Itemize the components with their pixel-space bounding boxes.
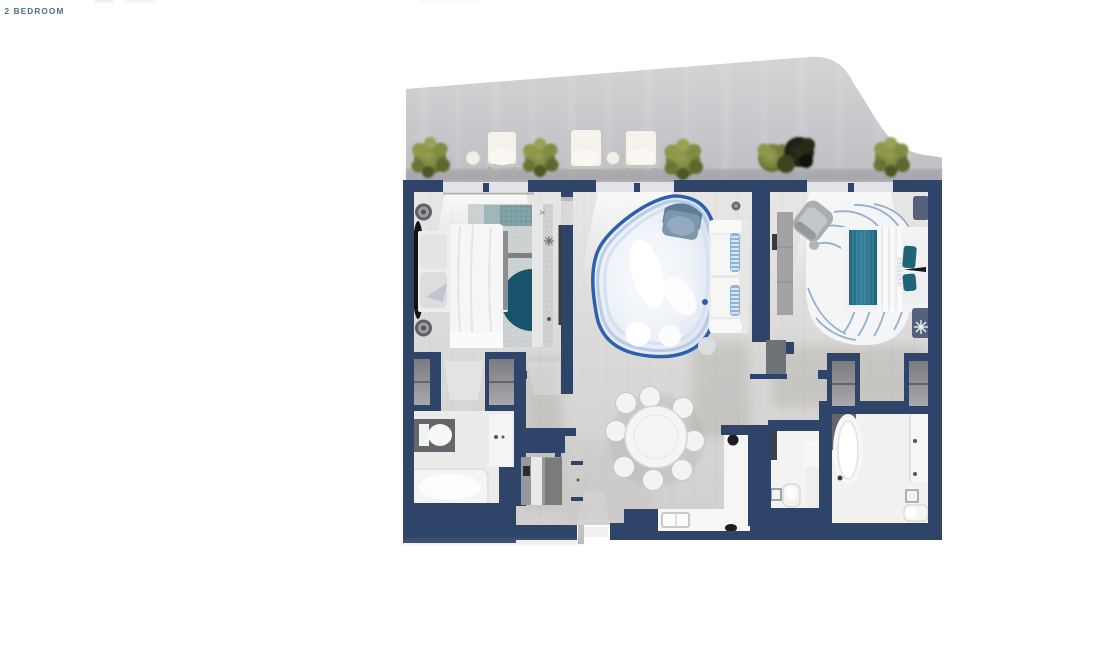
svg-text:2 BEDROOM: 2 BEDROOM bbox=[5, 7, 65, 16]
